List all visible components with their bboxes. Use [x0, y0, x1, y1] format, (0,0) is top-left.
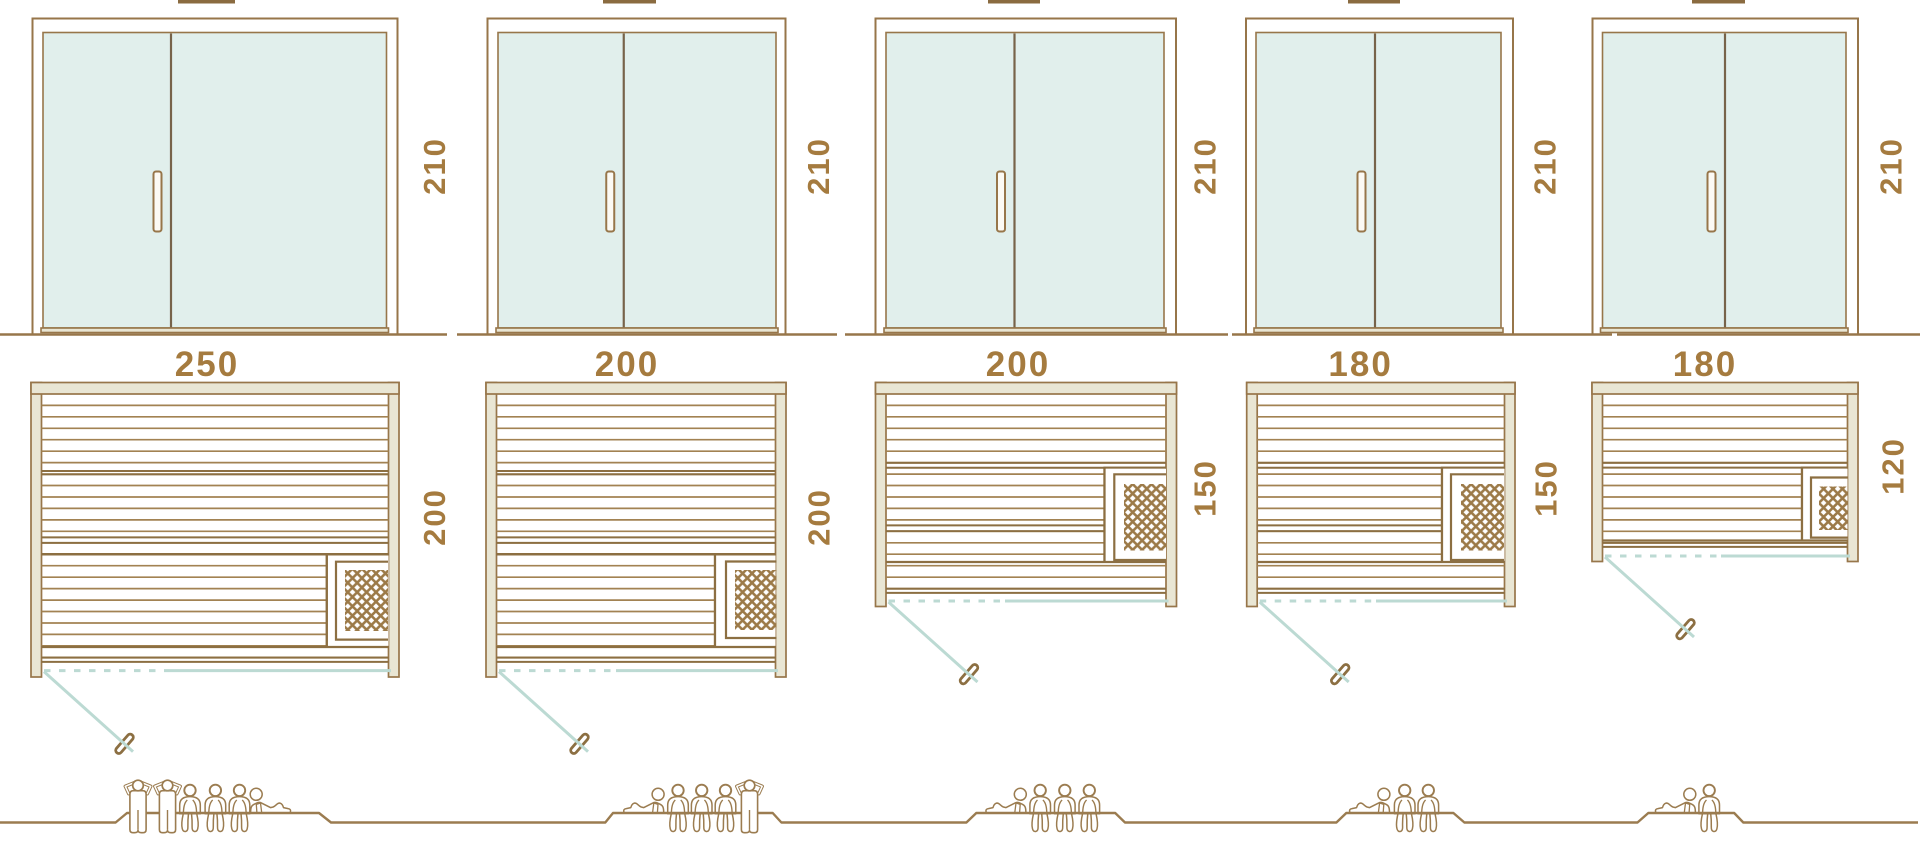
svg-text:200: 200 — [595, 345, 659, 384]
svg-text:210: 210 — [1874, 137, 1909, 195]
svg-text:150: 150 — [1529, 459, 1564, 517]
svg-text:150: 150 — [1188, 459, 1223, 517]
svg-text:210: 210 — [801, 137, 836, 195]
svg-text:210: 210 — [1528, 137, 1563, 195]
svg-text:180: 180 — [1328, 345, 1392, 384]
svg-text:250: 250 — [175, 345, 239, 384]
svg-text:210: 210 — [1188, 137, 1223, 195]
svg-text:200: 200 — [417, 488, 452, 546]
svg-text:180: 180 — [1673, 345, 1737, 384]
svg-text:200: 200 — [802, 488, 837, 546]
svg-text:210: 210 — [417, 137, 452, 195]
svg-text:120: 120 — [1876, 437, 1911, 495]
svg-text:200: 200 — [986, 345, 1050, 384]
